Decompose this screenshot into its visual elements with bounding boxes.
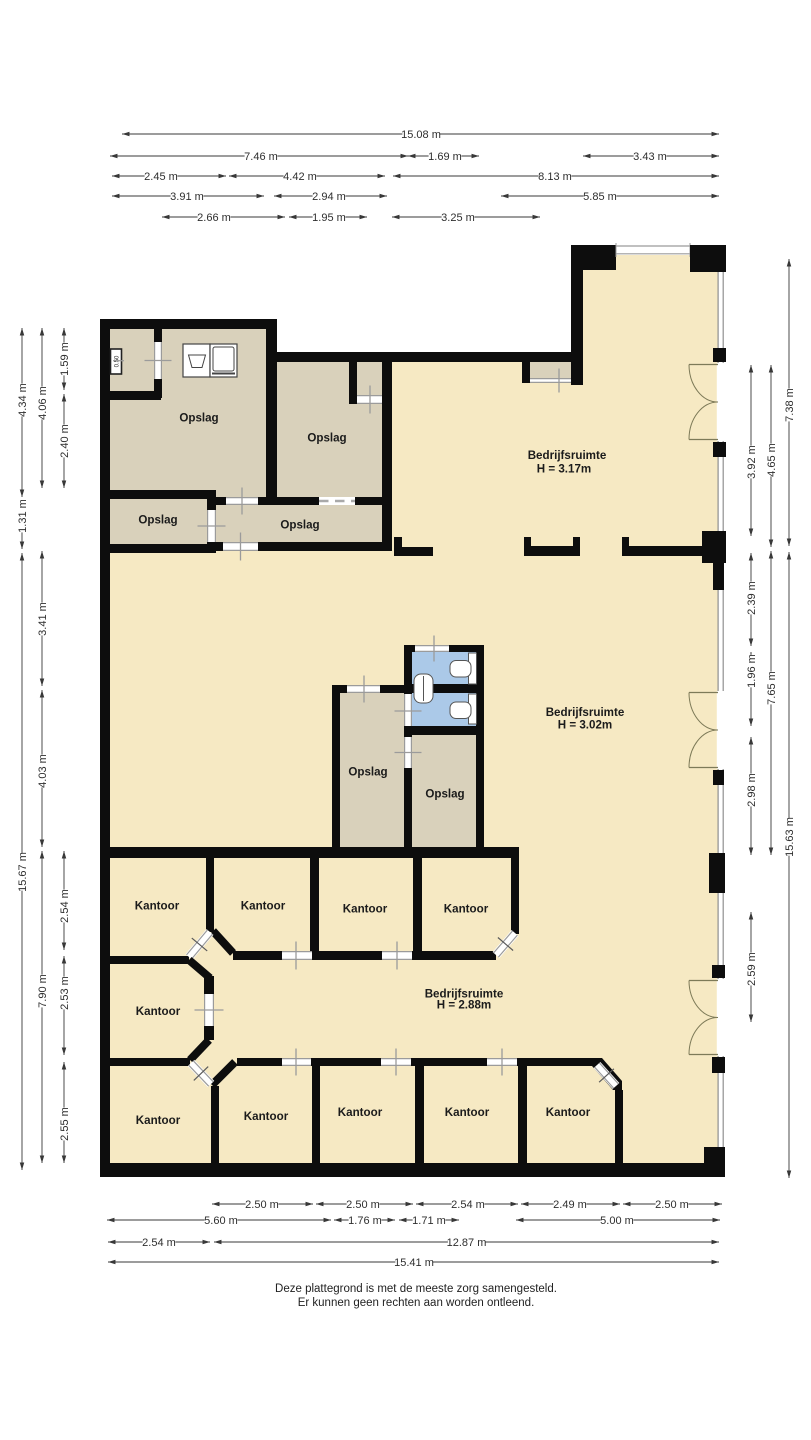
svg-text:2.50 m: 2.50 m (346, 1199, 380, 1211)
svg-text:12.87 m: 12.87 m (447, 1237, 487, 1249)
svg-text:4.03 m: 4.03 m (37, 754, 49, 788)
svg-text:2.54 m: 2.54 m (142, 1237, 176, 1249)
svg-text:H = 2.88m: H = 2.88m (437, 999, 491, 1012)
svg-text:7.46 m: 7.46 m (244, 151, 278, 163)
svg-text:2.59 m: 2.59 m (746, 952, 758, 986)
svg-text:2.94 m: 2.94 m (312, 191, 346, 203)
svg-text:Kantoor: Kantoor (546, 1106, 591, 1119)
svg-text:7.38 m: 7.38 m (784, 388, 796, 422)
svg-text:3.43 m: 3.43 m (633, 151, 667, 163)
svg-text:4.65 m: 4.65 m (766, 443, 778, 477)
svg-text:1.31 m: 1.31 m (17, 499, 29, 533)
svg-text:Kantoor: Kantoor (241, 900, 286, 913)
svg-text:3.25 m: 3.25 m (441, 212, 475, 224)
svg-text:4.06 m: 4.06 m (37, 386, 49, 420)
svg-text:5.60 m: 5.60 m (204, 1215, 238, 1227)
svg-text:H = 3.02m: H = 3.02m (558, 719, 612, 732)
svg-text:7.65 m: 7.65 m (766, 671, 778, 705)
svg-text:1.69 m: 1.69 m (428, 151, 462, 163)
svg-text:Deze plattegrond is met de mee: Deze plattegrond is met de meeste zorg s… (275, 1283, 557, 1295)
svg-text:4.34 m: 4.34 m (17, 383, 29, 417)
svg-text:Opslag: Opslag (280, 519, 319, 532)
svg-text:1.71 m: 1.71 m (412, 1215, 446, 1227)
svg-text:Kantoor: Kantoor (135, 900, 180, 913)
svg-text:15.41 m: 15.41 m (394, 1257, 434, 1269)
svg-text:2.49 m: 2.49 m (553, 1199, 587, 1211)
svg-text:3.92 m: 3.92 m (746, 445, 758, 479)
svg-text:15.08 m: 15.08 m (401, 129, 441, 141)
svg-text:2.39 m: 2.39 m (746, 581, 758, 615)
svg-text:Kantoor: Kantoor (338, 1106, 383, 1119)
svg-text:1.59 m: 1.59 m (59, 342, 71, 376)
svg-text:Opslag: Opslag (138, 514, 177, 527)
svg-text:Bedrijfsruimte: Bedrijfsruimte (546, 706, 625, 719)
svg-text:7.90 m: 7.90 m (37, 974, 49, 1008)
svg-text:H = 3.17m: H = 3.17m (537, 463, 591, 476)
svg-text:1.96 m: 1.96 m (746, 654, 758, 688)
svg-text:Bedrijfsruimte: Bedrijfsruimte (528, 449, 607, 462)
svg-text:3.91 m: 3.91 m (170, 191, 204, 203)
svg-text:2.54 m: 2.54 m (59, 889, 71, 923)
svg-text:2.50 m: 2.50 m (245, 1199, 279, 1211)
svg-text:Kantoor: Kantoor (244, 1110, 289, 1123)
svg-text:2.40 m: 2.40 m (59, 424, 71, 458)
svg-text:Kantoor: Kantoor (136, 1005, 181, 1018)
svg-text:2.98 m: 2.98 m (746, 773, 758, 807)
svg-text:2.55 m: 2.55 m (59, 1107, 71, 1141)
svg-text:Kantoor: Kantoor (136, 1114, 181, 1127)
svg-text:5.00 m: 5.00 m (600, 1215, 634, 1227)
svg-text:Opslag: Opslag (307, 432, 346, 445)
svg-text:Opslag: Opslag (179, 412, 218, 425)
svg-text:Kantoor: Kantoor (445, 1106, 490, 1119)
svg-text:15.63 m: 15.63 m (784, 817, 796, 857)
svg-text:2.45 m: 2.45 m (144, 171, 178, 183)
svg-text:2.66 m: 2.66 m (197, 212, 231, 224)
svg-text:3.41 m: 3.41 m (37, 602, 49, 636)
svg-text:Opslag: Opslag (348, 766, 387, 779)
svg-text:Opslag: Opslag (425, 788, 464, 801)
svg-text:Er kunnen geen rechten aan wor: Er kunnen geen rechten aan worden ontlee… (298, 1297, 535, 1309)
svg-text:1.95 m: 1.95 m (312, 212, 346, 224)
svg-text:Kantoor: Kantoor (343, 903, 388, 916)
svg-text:2.54 m: 2.54 m (451, 1199, 485, 1211)
svg-text:2.53 m: 2.53 m (59, 976, 71, 1010)
svg-text:4.42 m: 4.42 m (283, 171, 317, 183)
svg-text:8.13 m: 8.13 m (538, 171, 572, 183)
svg-text:2.50 m: 2.50 m (655, 1199, 689, 1211)
svg-text:5.85 m: 5.85 m (583, 191, 617, 203)
svg-text:1.76 m: 1.76 m (348, 1215, 382, 1227)
svg-text:Kantoor: Kantoor (444, 903, 489, 916)
svg-text:15.67 m: 15.67 m (17, 852, 29, 892)
